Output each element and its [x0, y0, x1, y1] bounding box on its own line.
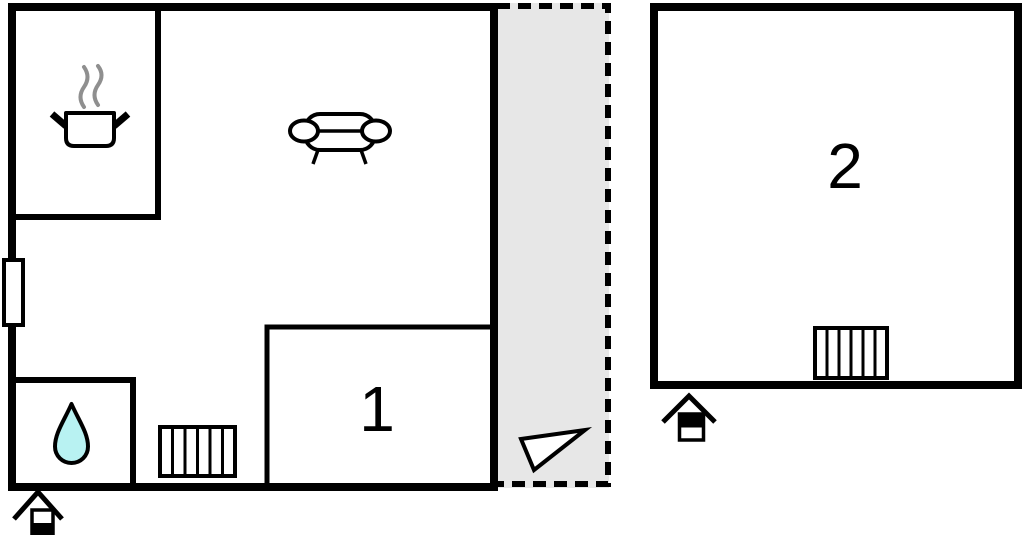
- terrace-area: [497, 3, 609, 488]
- house-floor-band: [678, 413, 705, 428]
- pot-body: [66, 113, 114, 146]
- radiator-icon: [815, 328, 887, 378]
- main-building-walls: [12, 7, 494, 487]
- window-icon: [4, 260, 23, 325]
- radiator-icon: [160, 427, 235, 476]
- house-upper-floor-icon: [663, 396, 715, 440]
- sofa-armrest-left: [290, 121, 318, 142]
- floor-plan-drawing: 1 2: [0, 0, 1024, 535]
- room1-label: 1: [359, 373, 395, 445]
- room2-label: 2: [827, 130, 863, 202]
- terrace-fill: [497, 3, 609, 488]
- floor-plan-page: 1 2: [0, 0, 1024, 535]
- sofa-armrest-right: [362, 121, 390, 142]
- house-ground-floor-icon: [14, 492, 62, 535]
- house-floor-band: [31, 523, 55, 535]
